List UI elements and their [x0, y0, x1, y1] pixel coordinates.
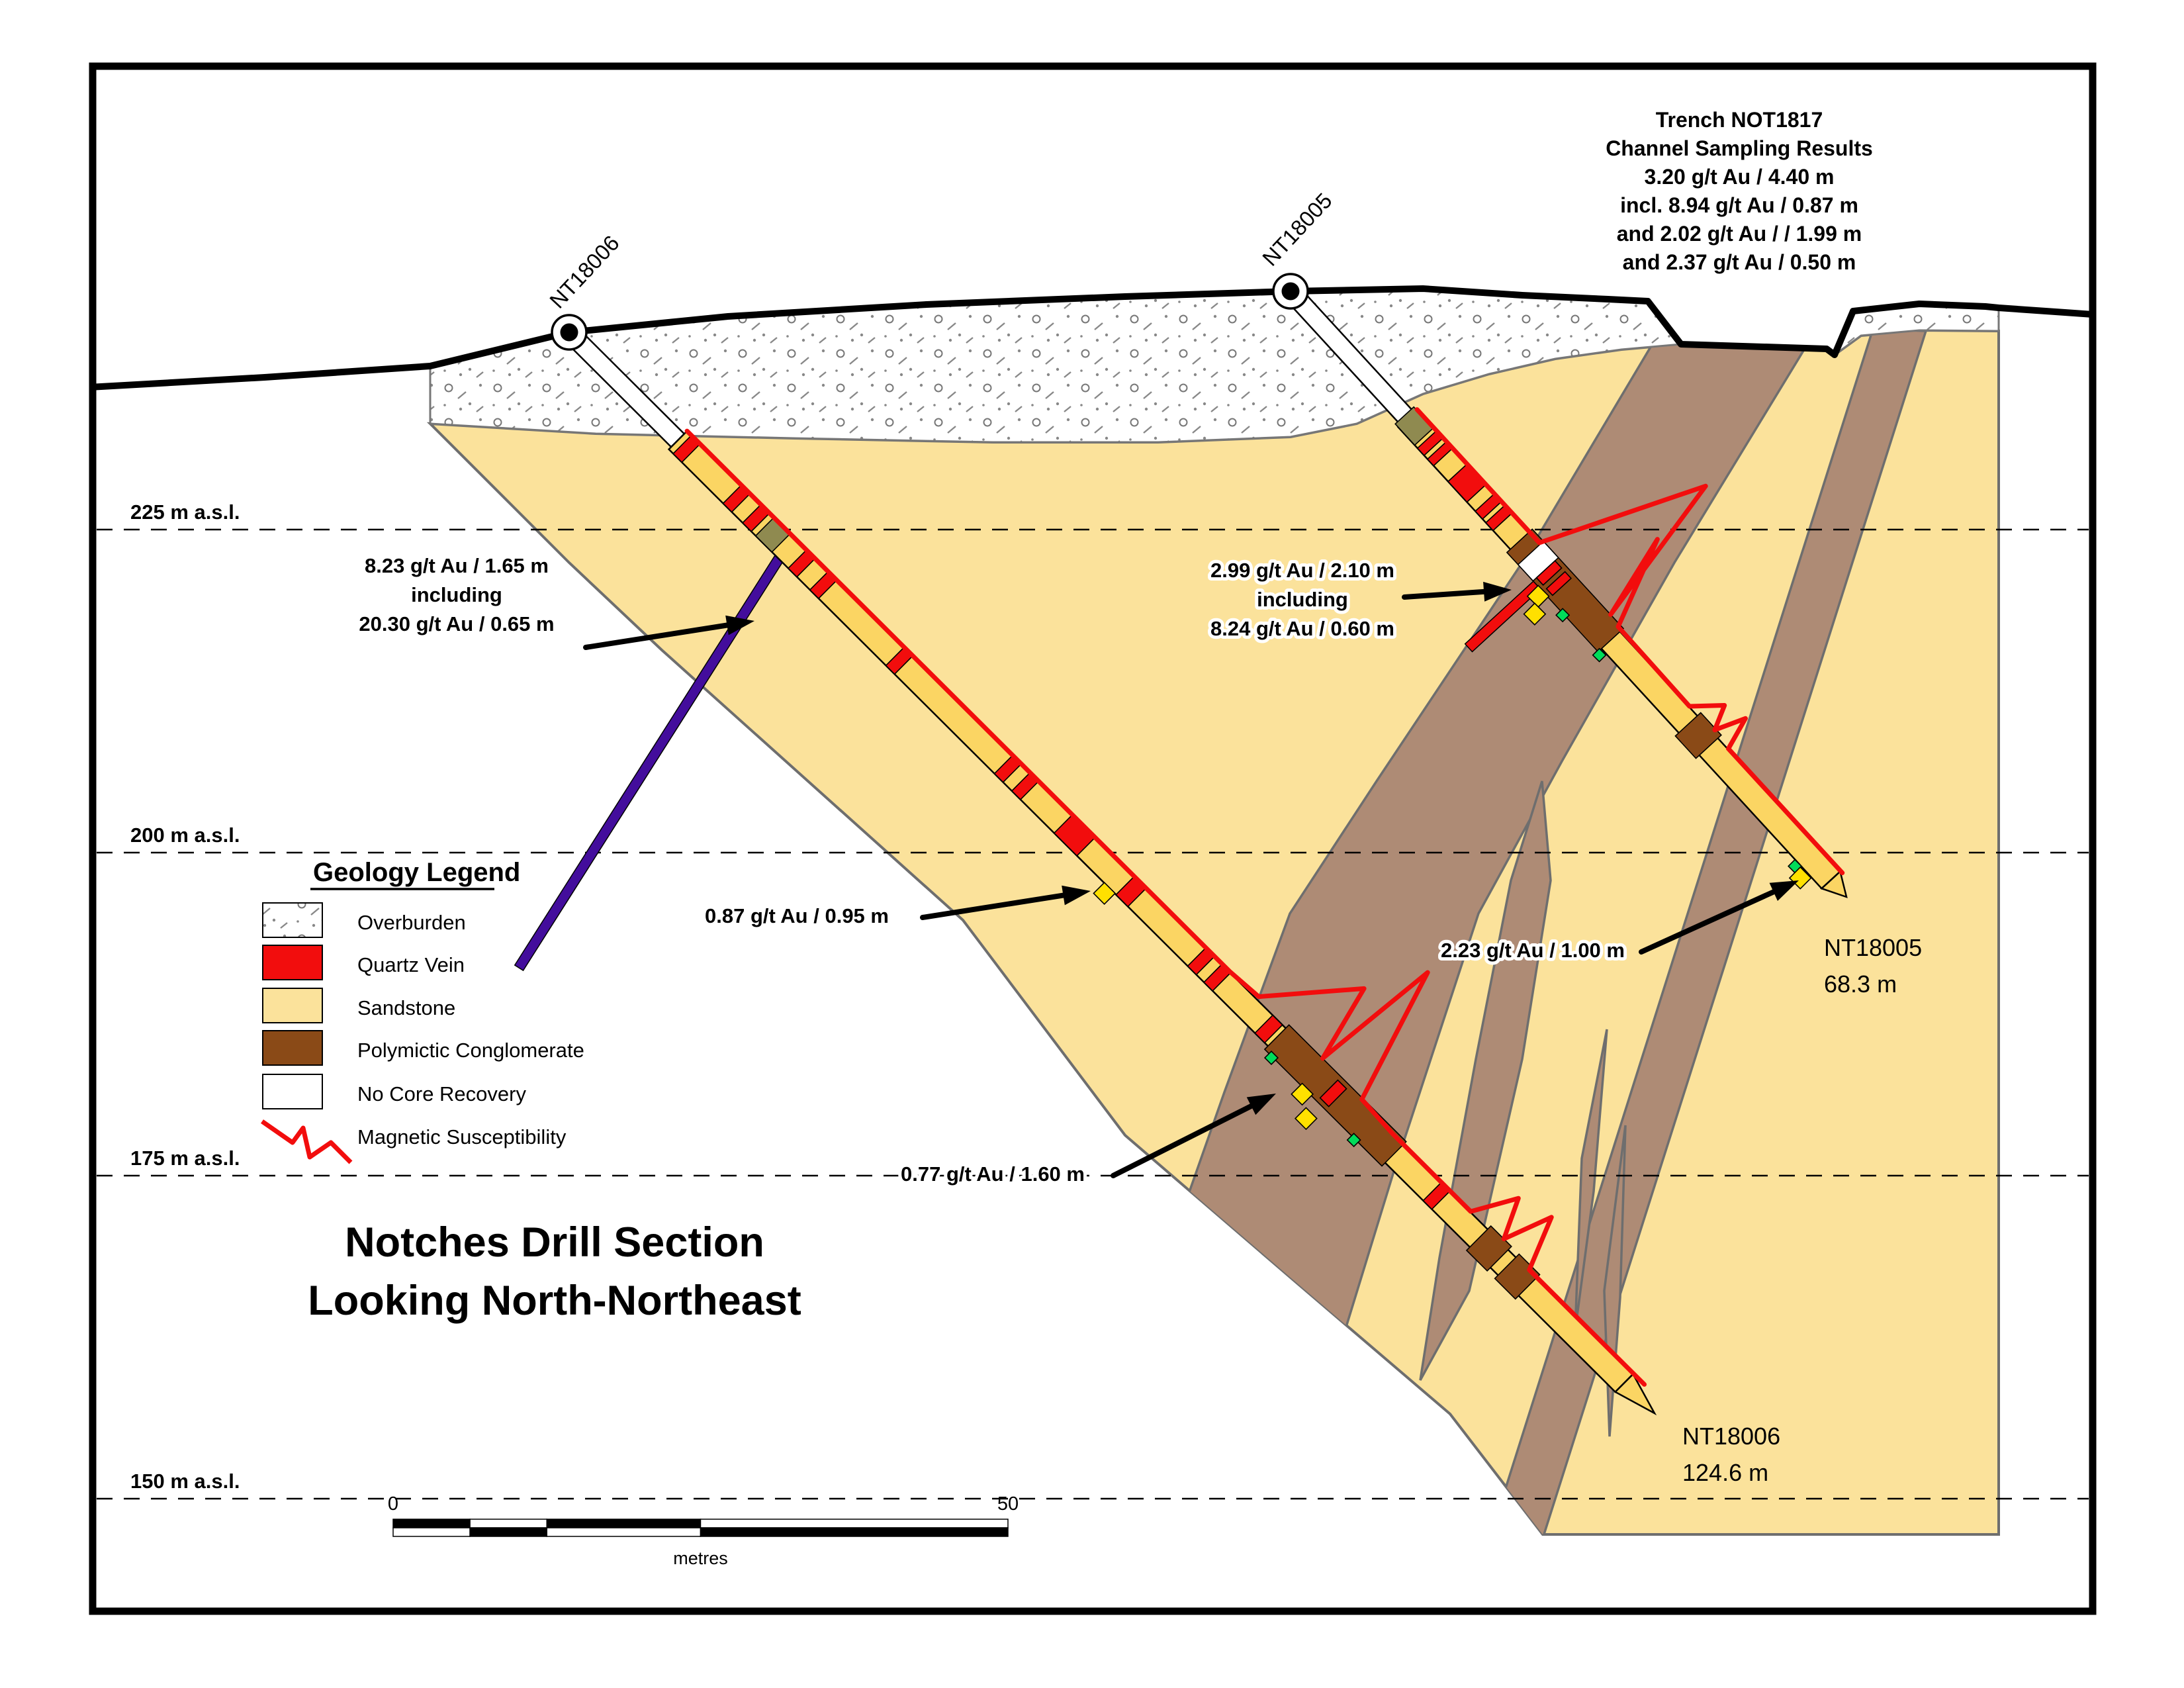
legend-swatch-overburden-icon: [263, 903, 322, 937]
section-title: Notches Drill SectionLooking North-North…: [308, 1219, 801, 1324]
label: 8.24 g/t Au / 0.60 m: [1210, 617, 1394, 640]
label: Magnetic Susceptibility: [357, 1125, 567, 1149]
collar-dot-icon: [561, 324, 578, 342]
scalebar-segment: [547, 1528, 700, 1536]
label: 0.77 g/t Au / 1.60 m: [901, 1162, 1085, 1186]
label: Channel Sampling Results: [1606, 136, 1873, 160]
label: 68.3 m: [1824, 970, 1897, 998]
scalebar-segment: [393, 1519, 470, 1528]
trench-sampling-note: Trench NOT1817Channel Sampling Results3.…: [1606, 108, 1873, 274]
label: 2.99 g/t Au / 2.10 m: [1210, 559, 1394, 582]
label: 0.87 g/t Au / 0.95 m: [705, 904, 889, 927]
label: Sandstone: [357, 996, 455, 1019]
scale-bar: 050metres: [388, 1493, 1019, 1568]
scalebar-segment: [393, 1528, 470, 1536]
label: including: [411, 583, 502, 606]
label: incl. 8.94 g/t Au / 0.87 m: [1620, 193, 1858, 217]
drill-section-figure: 225 m a.s.l.200 m a.s.l.175 m a.s.l.150 …: [0, 0, 2184, 1688]
geology-legend: Geology LegendOverburdenQuartz VeinSands…: [262, 858, 584, 1162]
legend-swatch-nocore-icon: [263, 1074, 322, 1109]
label: Polymictic Conglomerate: [357, 1039, 584, 1062]
label: NT18005: [1257, 188, 1337, 271]
label: and 2.37 g/t Au / 0.50 m: [1623, 250, 1856, 274]
legend-swatch-sandstone-icon: [263, 988, 322, 1023]
label: 2.23 g/t Au / 1.00 m: [1441, 939, 1625, 962]
label: 200 m a.s.l.: [130, 823, 240, 847]
sandstone-body: [430, 330, 1999, 1534]
label: Quartz Vein: [357, 953, 465, 976]
magsus-legend-zigzag-icon: [262, 1121, 351, 1162]
label: 225 m a.s.l.: [130, 500, 240, 524]
collar-dot-icon: [1282, 283, 1300, 301]
label: 8.23 g/t Au / 1.65 m: [365, 554, 549, 577]
label: 175 m a.s.l.: [130, 1147, 240, 1170]
label: 50: [997, 1493, 1019, 1515]
label: NT18006: [1682, 1423, 1780, 1450]
scalebar-segment: [701, 1528, 1009, 1536]
page: 225 m a.s.l.200 m a.s.l.175 m a.s.l.150 …: [0, 0, 2184, 1688]
legend-swatch-quartz-icon: [263, 945, 322, 980]
scalebar-segment: [547, 1519, 700, 1528]
label: Overburden: [357, 911, 466, 934]
label: NT18006: [545, 230, 624, 313]
label: 124.6 m: [1682, 1459, 1768, 1486]
label: Geology Legend: [313, 858, 520, 887]
label: Looking North-Northeast: [308, 1278, 801, 1324]
label: No Core Recovery: [357, 1082, 526, 1105]
legend-swatch-conglomerate-icon: [263, 1031, 322, 1065]
label: including: [1257, 588, 1348, 611]
label: 0: [388, 1493, 398, 1515]
label: Trench NOT1817: [1656, 108, 1823, 132]
label: metres: [673, 1548, 728, 1568]
label: 20.30 g/t Au / 0.65 m: [359, 612, 554, 635]
label: 150 m a.s.l.: [130, 1470, 240, 1493]
scalebar-segment: [470, 1519, 547, 1528]
label: 3.20 g/t Au / 4.40 m: [1645, 165, 1835, 189]
label: NT18005: [1824, 934, 1922, 961]
scalebar-segment: [701, 1519, 1009, 1528]
label: Notches Drill Section: [345, 1219, 764, 1266]
label: and 2.02 g/t Au / / 1.99 m: [1617, 222, 1862, 246]
scalebar-segment: [470, 1528, 547, 1536]
